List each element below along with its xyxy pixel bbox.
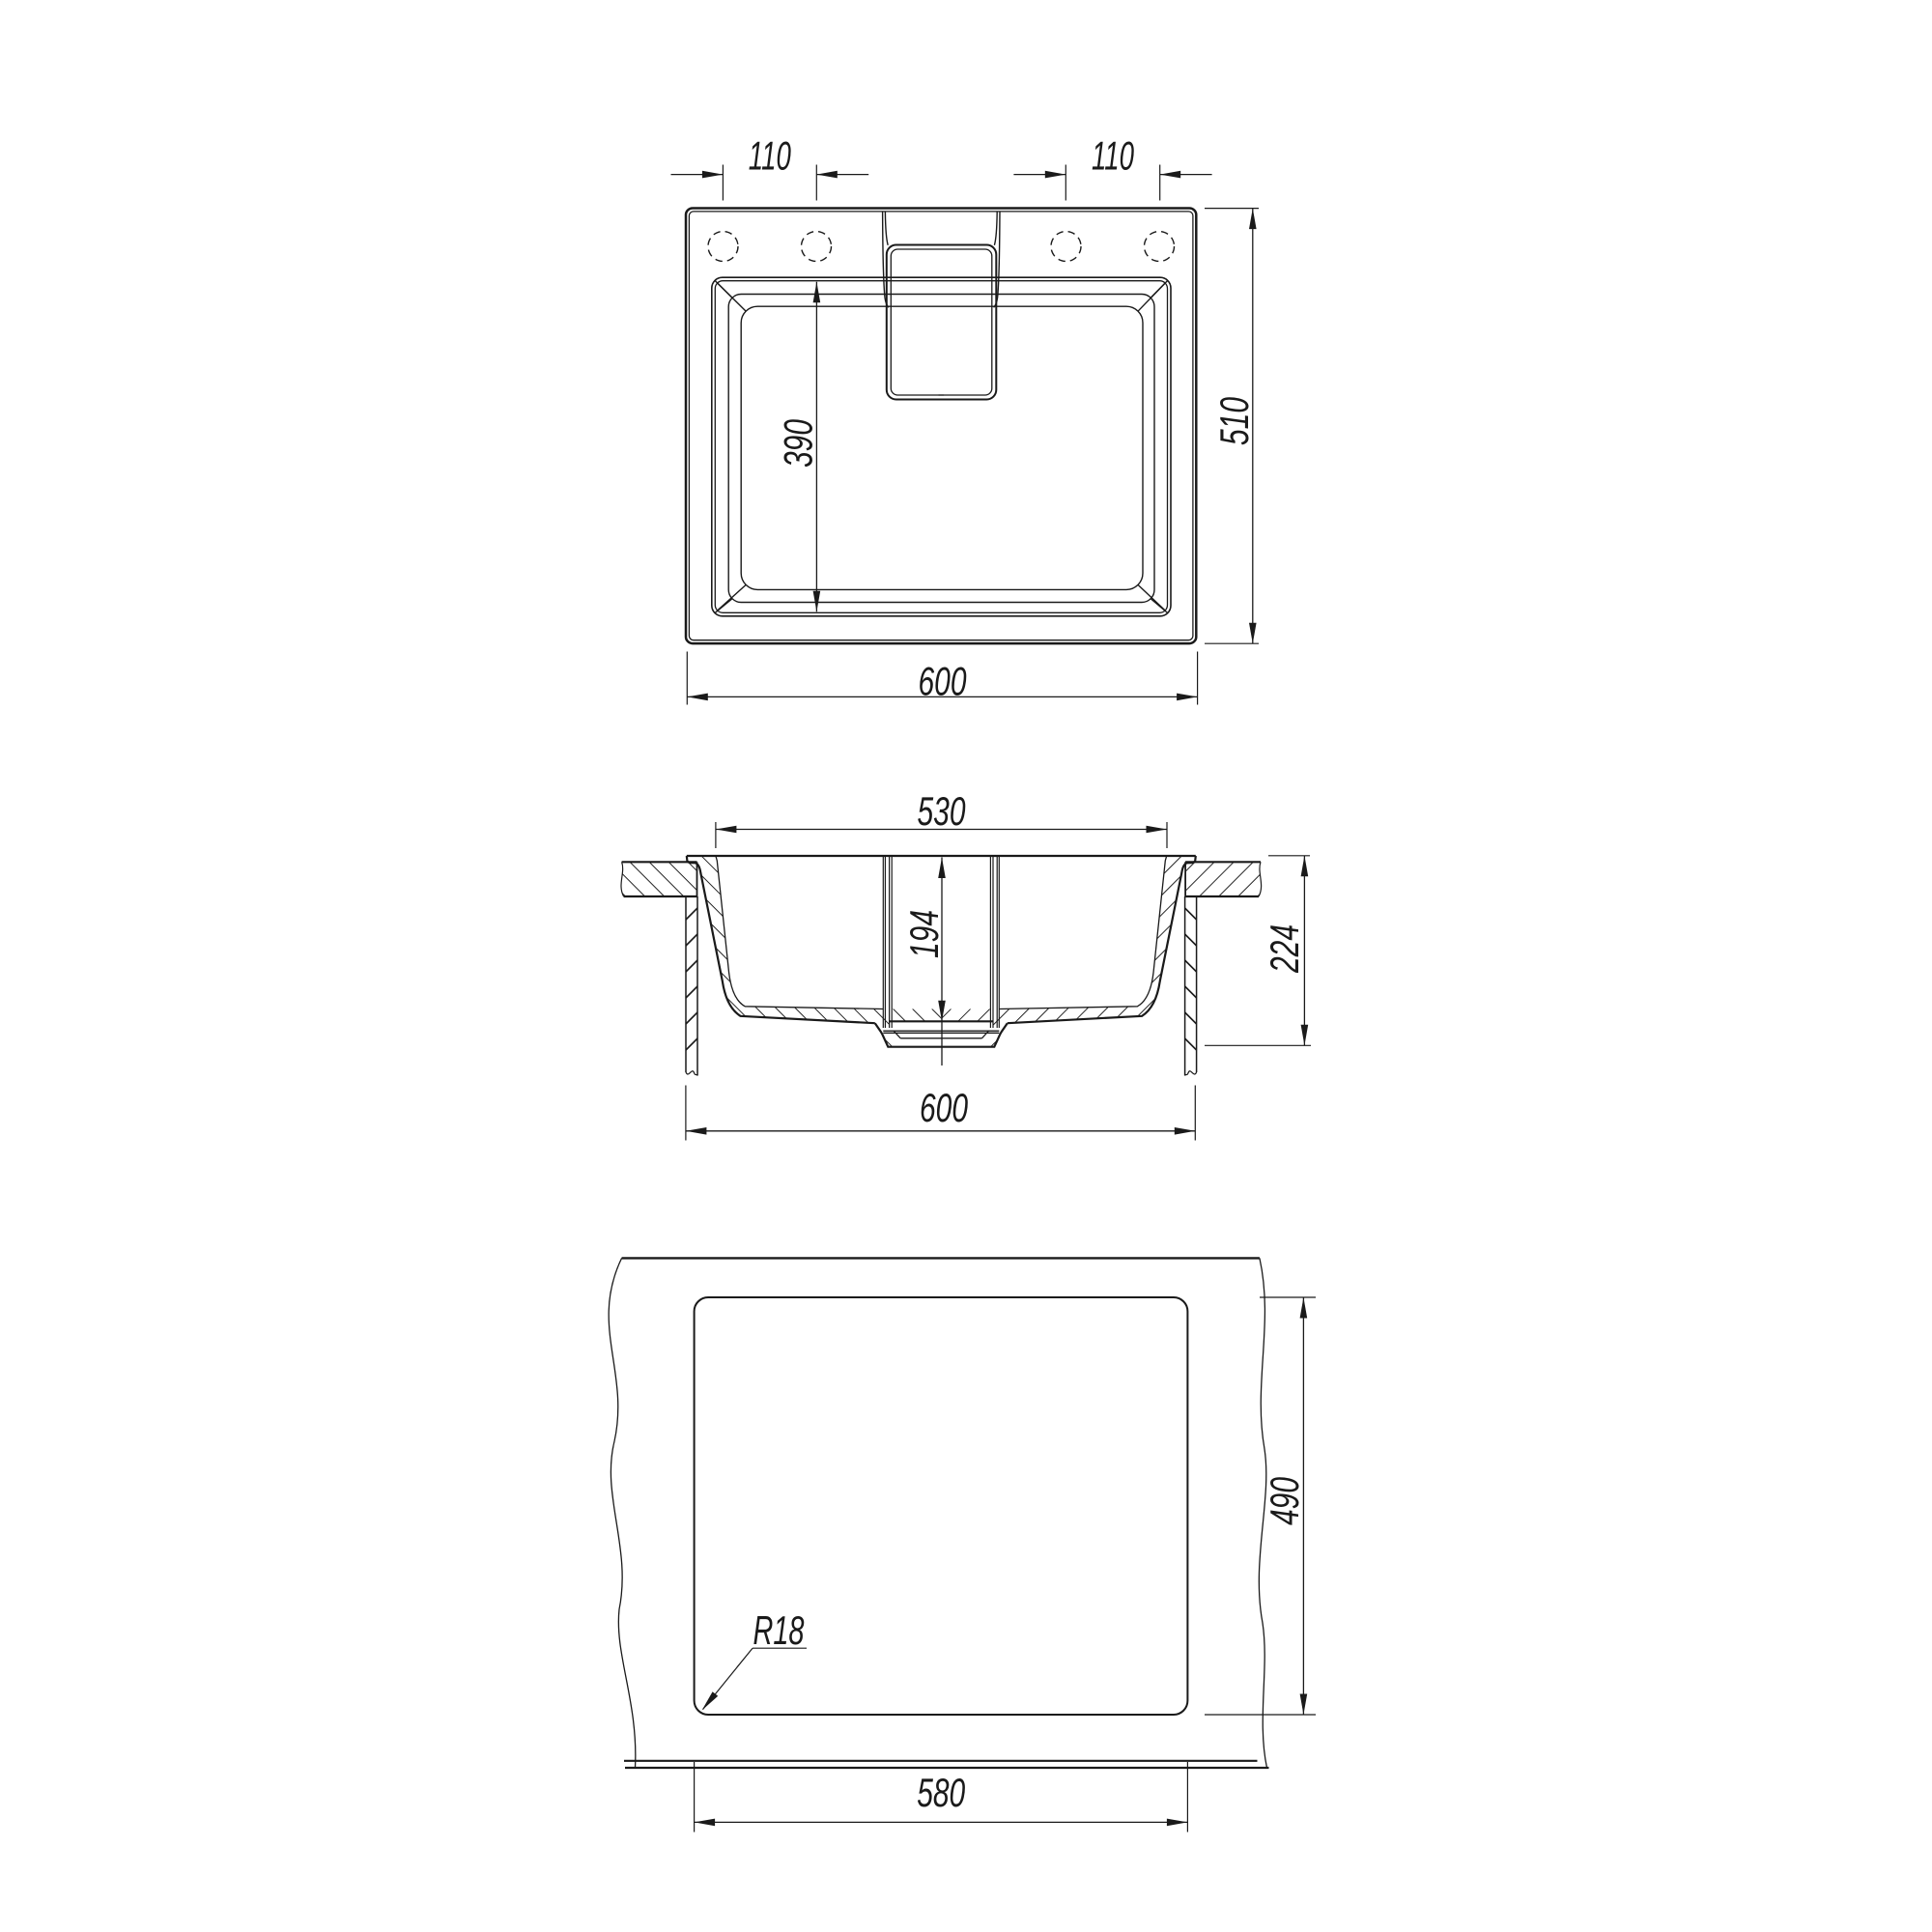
- svg-text:530: 530: [918, 788, 966, 834]
- svg-text:110: 110: [1092, 133, 1134, 179]
- svg-text:600: 600: [919, 659, 967, 704]
- svg-text:194: 194: [901, 910, 947, 958]
- svg-text:390: 390: [776, 419, 821, 468]
- svg-text:600: 600: [920, 1085, 968, 1130]
- svg-text:110: 110: [749, 133, 791, 179]
- svg-text:510: 510: [1211, 397, 1257, 445]
- svg-text:580: 580: [917, 1770, 965, 1815]
- svg-text:R18: R18: [753, 1607, 805, 1653]
- svg-text:490: 490: [1262, 1477, 1307, 1525]
- svg-text:224: 224: [1262, 924, 1307, 974]
